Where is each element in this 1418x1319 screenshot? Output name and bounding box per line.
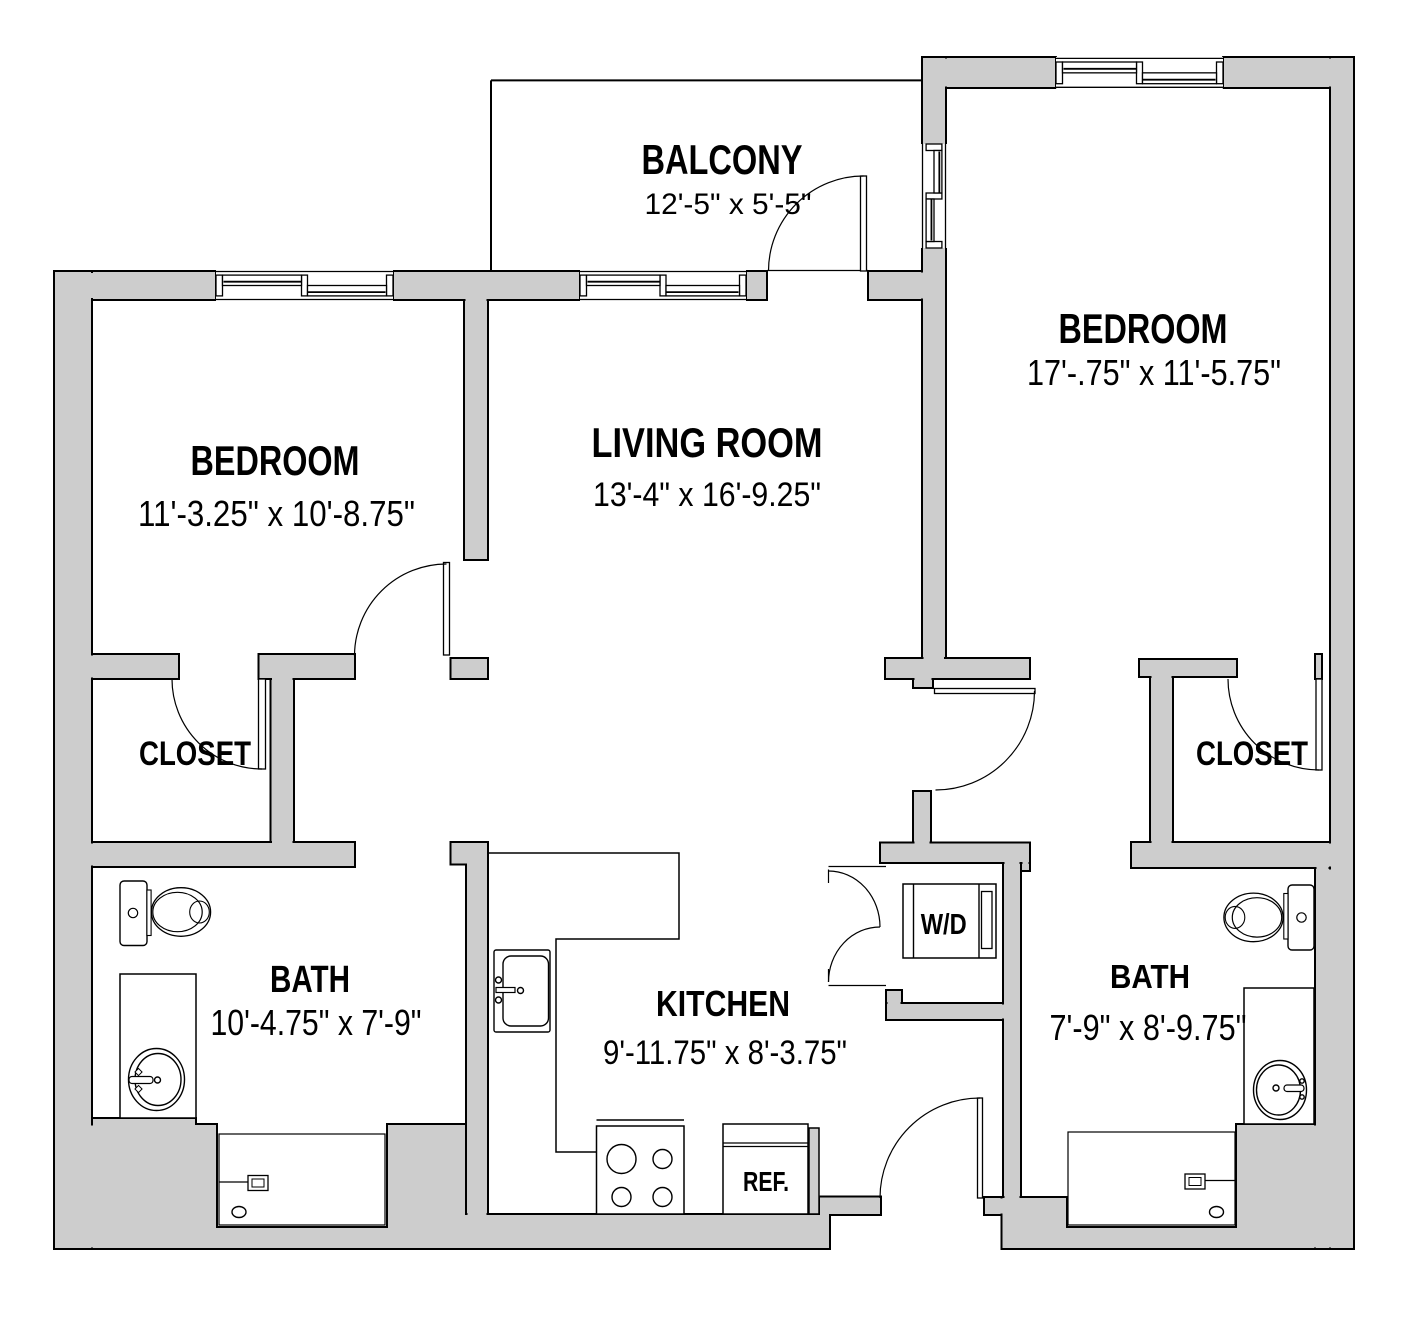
svg-text:CLOSET: CLOSET [139, 735, 251, 773]
svg-text:BEDROOM: BEDROOM [1059, 305, 1228, 352]
svg-text:17'-.75" x 11'-5.75": 17'-.75" x 11'-5.75" [1027, 352, 1281, 393]
svg-text:11'-3.25" x 10'-8.75": 11'-3.25" x 10'-8.75" [138, 493, 415, 534]
svg-text:BATH: BATH [270, 959, 350, 1001]
svg-text:KITCHEN: KITCHEN [656, 983, 790, 1024]
svg-text:CLOSET: CLOSET [1196, 735, 1308, 773]
svg-text:W/D: W/D [921, 909, 967, 941]
svg-text:12'-5" x 5'-5": 12'-5" x 5'-5" [645, 188, 812, 221]
svg-text:13'-4" x 16'-9.25": 13'-4" x 16'-9.25" [593, 476, 821, 514]
svg-text:BATH: BATH [1110, 958, 1190, 995]
svg-text:BALCONY: BALCONY [642, 136, 803, 183]
svg-text:10'-4.75" x 7'-9": 10'-4.75" x 7'-9" [211, 1002, 422, 1043]
svg-text:7'-9" x 8'-9.75": 7'-9" x 8'-9.75" [1050, 1007, 1247, 1048]
svg-text:REF.: REF. [743, 1166, 789, 1197]
svg-text:BEDROOM: BEDROOM [191, 437, 360, 484]
svg-text:LIVING ROOM: LIVING ROOM [592, 419, 823, 466]
svg-text:9'-11.75" x 8'-3.75": 9'-11.75" x 8'-3.75" [603, 1034, 847, 1072]
